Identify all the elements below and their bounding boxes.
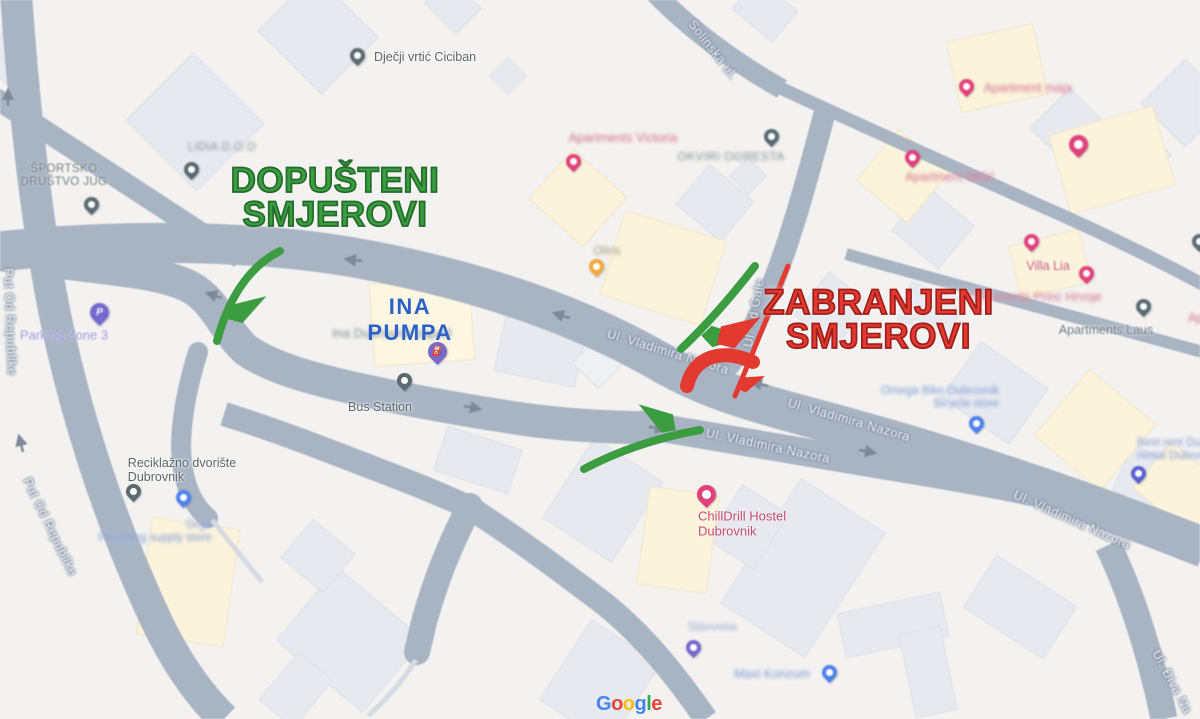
logo-letter: e <box>651 693 662 715</box>
logo-letter: o <box>611 693 623 715</box>
allowed-direction-arrow-3 <box>584 430 700 469</box>
title-line: PUMPA <box>340 320 480 346</box>
forbidden-directions-title: ZABRANJENI SMJEROVI <box>726 286 1031 354</box>
title-line: SMJEROVI <box>726 320 1031 354</box>
google-logo[interactable]: Google <box>596 693 662 716</box>
title-line: SMJEROVI <box>180 198 490 232</box>
logo-letter: o <box>623 693 635 715</box>
annotation-arrows-layer <box>0 0 1200 719</box>
logo-letter: g <box>635 693 647 715</box>
map-canvas: Solinska ul. Ul. od Gale Ul. Vladimira N… <box>0 0 1200 719</box>
title-line: INA <box>340 294 480 320</box>
title-line: ZABRANJENI <box>726 286 1031 320</box>
ina-pumpa-label: INA PUMPA <box>340 294 480 346</box>
logo-letter: G <box>596 693 611 715</box>
allowed-direction-arrow-1 <box>217 251 280 341</box>
title-line: DOPUŠTENI <box>180 164 490 198</box>
allowed-directions-title: DOPUŠTENI SMJEROVI <box>180 164 490 232</box>
